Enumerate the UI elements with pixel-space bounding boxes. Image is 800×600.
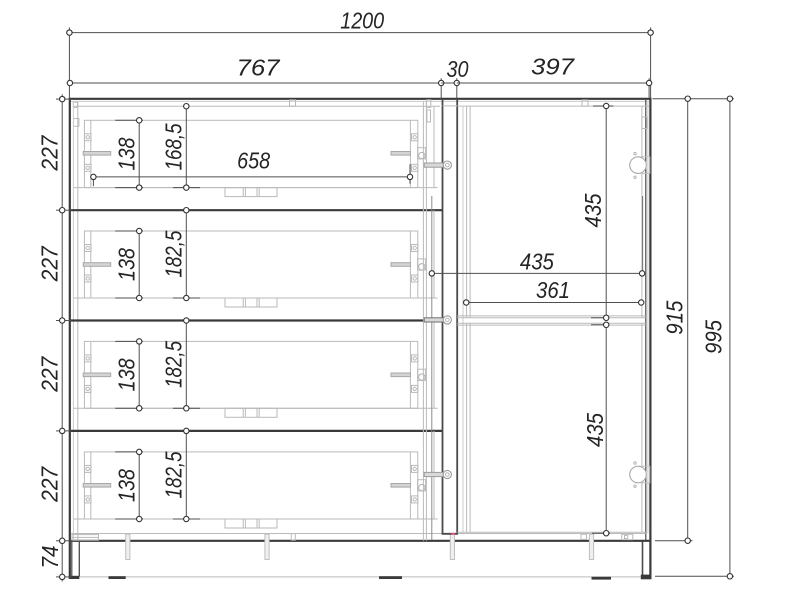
svg-text:30: 30 bbox=[447, 56, 469, 82]
svg-text:361: 361 bbox=[536, 277, 570, 303]
svg-text:915: 915 bbox=[662, 301, 688, 335]
svg-text:767: 767 bbox=[237, 55, 281, 81]
svg-text:227: 227 bbox=[37, 356, 63, 393]
svg-text:435: 435 bbox=[520, 249, 554, 275]
svg-text:227: 227 bbox=[37, 245, 63, 282]
svg-text:182,5: 182,5 bbox=[160, 451, 186, 498]
svg-text:138: 138 bbox=[113, 469, 139, 502]
svg-text:397: 397 bbox=[531, 53, 575, 79]
svg-text:1200: 1200 bbox=[340, 7, 384, 33]
svg-text:435: 435 bbox=[582, 413, 608, 447]
svg-text:995: 995 bbox=[701, 320, 727, 354]
svg-text:138: 138 bbox=[113, 358, 139, 391]
svg-text:658: 658 bbox=[237, 147, 270, 173]
svg-text:435: 435 bbox=[580, 193, 606, 227]
svg-text:227: 227 bbox=[37, 134, 63, 171]
svg-text:227: 227 bbox=[37, 466, 63, 503]
svg-text:74: 74 bbox=[37, 546, 63, 569]
svg-text:138: 138 bbox=[113, 137, 139, 170]
svg-text:182,5: 182,5 bbox=[160, 341, 186, 388]
svg-text:168,5: 168,5 bbox=[160, 123, 186, 170]
svg-text:138: 138 bbox=[113, 248, 139, 281]
svg-text:182,5: 182,5 bbox=[160, 230, 186, 277]
